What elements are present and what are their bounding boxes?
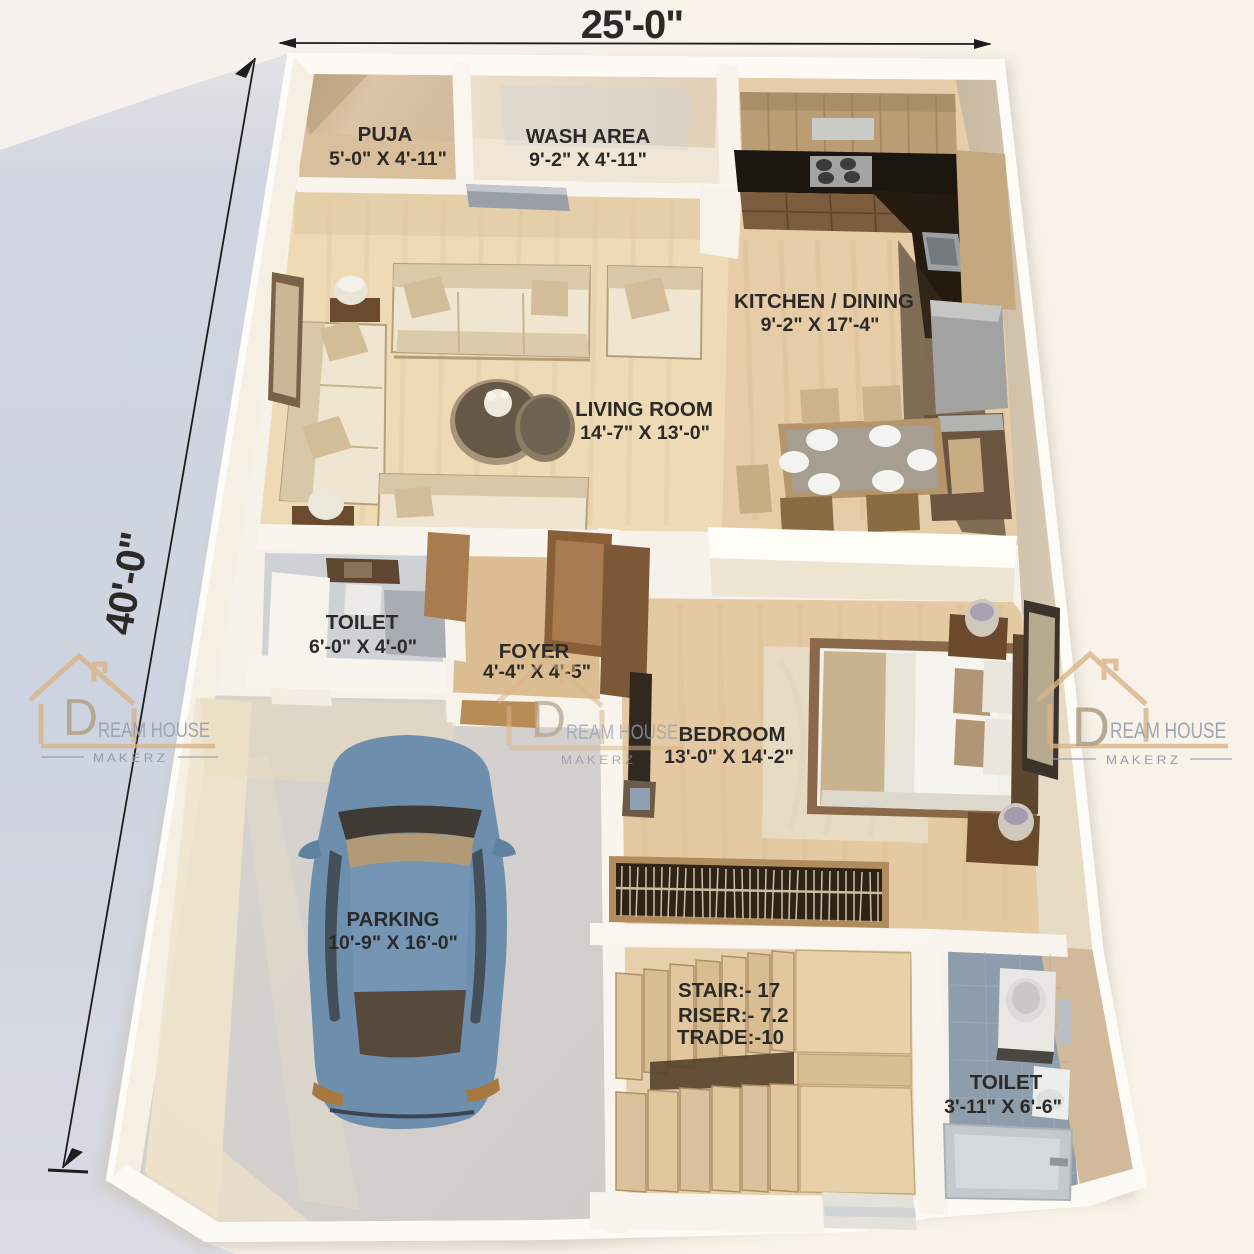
svg-text:D: D — [531, 691, 566, 749]
svg-text:LIVING ROOM: LIVING ROOM — [575, 398, 713, 421]
svg-text:TRADE:-10: TRADE:-10 — [677, 1026, 784, 1049]
svg-text:BEDROOM: BEDROOM — [678, 723, 785, 746]
svg-text:TOILET: TOILET — [326, 611, 399, 634]
svg-text:KITCHEN / DINING: KITCHEN / DINING — [734, 290, 914, 313]
svg-text:RISER:- 7.2: RISER:- 7.2 — [678, 1004, 789, 1027]
svg-text:REAM HOUSE: REAM HOUSE — [98, 719, 210, 742]
svg-text:M A K E R Z: M A K E R Z — [93, 751, 165, 765]
svg-text:5'-0" X 4'-11": 5'-0" X 4'-11" — [329, 148, 447, 170]
svg-text:TOILET: TOILET — [970, 1071, 1043, 1094]
svg-text:REAM HOUSE: REAM HOUSE — [566, 721, 678, 744]
svg-text:REAM HOUSE: REAM HOUSE — [1110, 718, 1226, 743]
svg-text:PUJA: PUJA — [358, 123, 413, 146]
svg-text:9'-2" X 4'-11": 9'-2" X 4'-11" — [529, 149, 647, 171]
svg-text:M A K E R Z: M A K E R Z — [1106, 753, 1178, 767]
svg-text:WASH AREA: WASH AREA — [526, 125, 651, 148]
svg-text:FOYER: FOYER — [499, 640, 570, 663]
svg-text:STAIR:- 17: STAIR:- 17 — [678, 979, 780, 1002]
svg-text:13'-0" X 14'-2": 13'-0" X 14'-2" — [664, 746, 794, 768]
svg-text:PARKING: PARKING — [346, 908, 439, 931]
svg-text:9'-2" X 17'-4": 9'-2" X 17'-4" — [761, 314, 880, 336]
svg-text:25'-0": 25'-0" — [581, 3, 684, 47]
svg-text:D: D — [63, 689, 98, 747]
svg-text:14'-7" X 13'-0": 14'-7" X 13'-0" — [580, 422, 710, 444]
svg-text:6'-0" X 4'-0": 6'-0" X 4'-0" — [309, 636, 417, 658]
svg-text:M A K E R Z: M A K E R Z — [561, 753, 633, 767]
svg-text:D: D — [1072, 695, 1110, 758]
svg-text:10'-9" X 16'-0": 10'-9" X 16'-0" — [328, 932, 458, 954]
svg-text:3'-11" X 6'-6": 3'-11" X 6'-6" — [944, 1096, 1062, 1118]
